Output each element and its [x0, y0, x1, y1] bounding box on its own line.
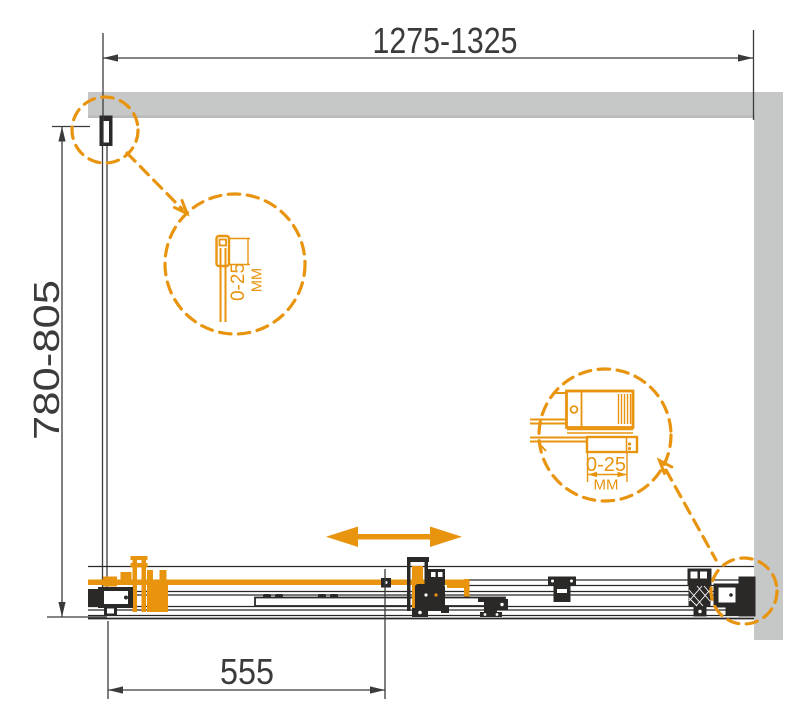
- top-profile-unit-label: MM: [250, 268, 266, 292]
- fixed-panel-bottom-profile: [255, 594, 508, 610]
- roller-block-left: [147, 583, 168, 612]
- wall-profile-top-left-inner: [103, 121, 109, 143]
- top-wall-edge: [88, 116, 755, 119]
- door-width-label: 555: [220, 651, 274, 692]
- leader-line: [666, 470, 716, 560]
- width-dimension: 1275-1325: [103, 20, 754, 145]
- roller-prong: [160, 570, 167, 584]
- bottom-profile-adjustment-label: 0-25: [586, 454, 626, 476]
- top-wall: [88, 92, 755, 118]
- walls: [88, 92, 783, 640]
- door-bracket: [121, 572, 132, 581]
- roller-prong: [147, 570, 153, 584]
- shower-enclosure-drawing: 1275-1325 780-805 555 0-25 MM: [0, 0, 800, 725]
- fixed-panel-left: [100, 116, 113, 590]
- detail-view-top-profile: 0-25 MM: [217, 236, 266, 322]
- right-wall: [754, 92, 783, 640]
- top-profile-adjustment-label: 0-25: [228, 263, 249, 301]
- roller-right: [688, 569, 712, 617]
- roller-tower-crossbar: [131, 563, 148, 568]
- wall-bracket-left: [88, 587, 133, 616]
- door-end-cap: [103, 577, 117, 587]
- leader-line: [127, 153, 182, 209]
- bottom-profile-unit-label: MM: [594, 477, 619, 494]
- depth-dimension: 780-805: [26, 127, 107, 618]
- technical-drawing-canvas: 1275-1325 780-805 555 0-25 MM: [0, 0, 800, 725]
- slide-direction-arrow-icon: [326, 527, 462, 548]
- roller-mid: [548, 577, 576, 603]
- width-dimension-label: 1275-1325: [373, 20, 518, 61]
- depth-dimension-label: 780-805: [26, 280, 67, 440]
